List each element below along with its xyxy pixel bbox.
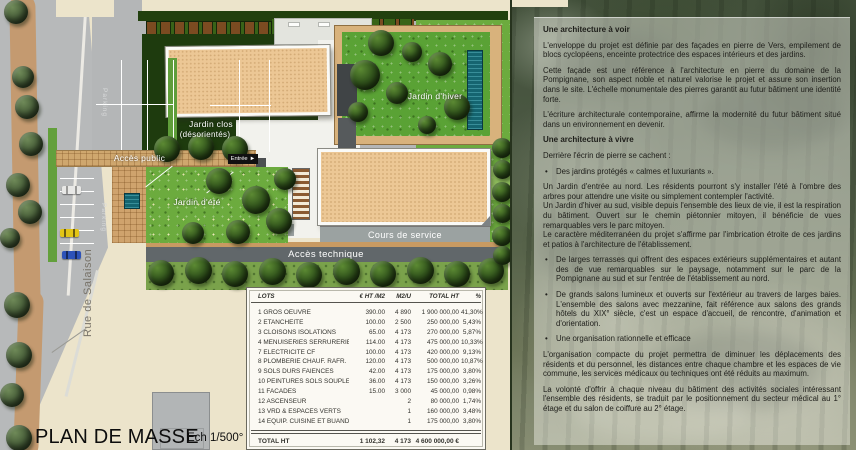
- panel-paragraph: L'enveloppe du projet est définie par de…: [543, 41, 841, 60]
- parking-label: Parking: [101, 88, 108, 117]
- tree-icon: [0, 228, 20, 248]
- table-cell: 9,13%: [461, 348, 483, 358]
- table-row: 13 VRD & ESPACES VERTS1160 000,003,48%: [251, 407, 481, 417]
- table-cell: 4 173: [387, 357, 413, 367]
- tree-icon: [206, 168, 232, 194]
- table-cell: 80 000,00: [413, 397, 461, 407]
- table-cell: 175 000,00: [413, 417, 461, 427]
- table-cell: 7 ELECTRICITE CF: [251, 348, 349, 358]
- table-cell: 4 173: [387, 436, 413, 447]
- public-access-label: Accès public: [92, 153, 187, 163]
- table-cell: TOTAL HT: [251, 436, 349, 447]
- table-cell: 9 SOLS DURS FAIENCES: [251, 367, 349, 377]
- tree-icon: [6, 173, 30, 197]
- tree-icon: [492, 182, 512, 202]
- bullet-icon: •: [543, 255, 556, 284]
- table-cell: 100.00: [349, 348, 387, 358]
- car-icon: [62, 251, 81, 259]
- table-cell: 3,80%: [461, 417, 483, 427]
- page-title: PLAN DE MASSE: [35, 426, 199, 449]
- table-cell: 4 600 000,00 €: [413, 436, 461, 447]
- table-row: 9 SOLS DURS FAIENCES42.004 173175 000,00…: [251, 367, 481, 377]
- table-cell: [349, 397, 387, 407]
- summer-garden-label: Jardin d'été: [152, 197, 242, 207]
- tree-icon: [242, 186, 270, 214]
- table-cell: [349, 407, 387, 417]
- panel-paragraph: L'écriture architecturale contemporaine,…: [543, 110, 841, 129]
- table-cell: 5,87%: [461, 328, 483, 338]
- table-row: 3 CLOISONS ISOLATIONS65.004 173270 000,0…: [251, 328, 481, 338]
- tree-icon: [226, 220, 250, 244]
- lots-table-header: LOTS€ HT /M2M2/UTOTAL HT%: [251, 293, 481, 303]
- table-cell: 120.00: [349, 357, 387, 367]
- tree-icon: [368, 30, 394, 56]
- parking-stripes: [60, 168, 94, 256]
- presentation-page: Cours de service Accès technique Jardin …: [0, 0, 856, 450]
- table-cell: 4 173: [387, 338, 413, 348]
- service-court-label: Cours de service: [368, 230, 442, 240]
- table-row: 10 PEINTURES SOLS SOUPLES36.004 173150 0…: [251, 377, 481, 387]
- tree-icon: [274, 168, 296, 190]
- table-cell: 3 000: [387, 387, 413, 397]
- lots-table-total: TOTAL HT1 102,324 1734 600 000,00 €: [251, 433, 481, 447]
- table-cell: 11 FACADES: [251, 387, 349, 397]
- table-cell: M2/U: [387, 293, 413, 300]
- bullet-icon: •: [543, 334, 556, 344]
- page-margin: [512, 0, 568, 7]
- tree-icon: [4, 292, 30, 318]
- table-cell: 4 173: [387, 328, 413, 338]
- table-cell: 12 ASCENSEUR: [251, 397, 349, 407]
- tree-icon: [407, 257, 434, 284]
- panel-heading: Une architecture à voir: [543, 25, 841, 35]
- panel-paragraph: Derrière l'écrin de pierre se cachent :: [543, 151, 841, 161]
- panel-paragraph: •Une organisation rationnelle et efficac…: [543, 334, 841, 344]
- jardin-clos-label: Jardin clos: [156, 119, 266, 129]
- tree-icon: [348, 102, 368, 122]
- photo-panel: Une architecture à voirL'enveloppe du pr…: [510, 0, 856, 450]
- building-south: [318, 149, 490, 225]
- table-cell: 13 VRD & ESPACES VERTS: [251, 407, 349, 417]
- arrow-right-icon: ►: [250, 156, 256, 162]
- table-cell: 36.00: [349, 377, 387, 387]
- jardin-clos-sublabel: (désorientés): [150, 130, 260, 139]
- tree-icon: [182, 222, 204, 244]
- table-cell: 270 000,00: [413, 328, 461, 338]
- table-cell: 175 000,00: [413, 367, 461, 377]
- table-cell: 4 173: [387, 377, 413, 387]
- tree-icon: [259, 258, 286, 285]
- tree-icon: [19, 132, 43, 156]
- table-cell: 8 PLOMBERIE CHAUF. RAFR.: [251, 357, 349, 367]
- table-cell: 1 900 000,00: [413, 308, 461, 318]
- table-cell: 420 000,00: [413, 348, 461, 358]
- sidewalk-path: [9, 0, 41, 314]
- table-cell: 4 890: [387, 308, 413, 318]
- table-cell: 390.00: [349, 308, 387, 318]
- table-cell: 41,30%: [461, 308, 483, 318]
- table-cell: 0,98%: [461, 387, 483, 397]
- tree-icon: [12, 66, 34, 88]
- lots-table-body: 1 GROS OEUVRE390.004 8901 900 000,0041,3…: [251, 308, 481, 427]
- table-cell: 3,48%: [461, 407, 483, 417]
- table-cell: 2: [387, 397, 413, 407]
- table-cell: 45 000,00: [413, 387, 461, 397]
- tree-icon: [418, 116, 436, 134]
- panel-paragraph: Un Jardin d'entrée au nord. Les résident…: [543, 182, 841, 201]
- table-cell: 1: [387, 407, 413, 417]
- table-row: 14 EQUIP. CUISINE ET BUANDERIE1175 000,0…: [251, 417, 481, 427]
- scale-label: Ech 1/500°: [187, 432, 243, 444]
- bullet-text: Des jardins protégés « calmes et luxuria…: [556, 167, 841, 177]
- panel-text: Une architecture à voirL'enveloppe du pr…: [543, 25, 841, 420]
- table-cell: 15.00: [349, 387, 387, 397]
- table-cell: 150 000,00: [413, 377, 461, 387]
- table-cell: LOTS: [251, 293, 349, 300]
- entrance-text: Entrée: [231, 156, 248, 162]
- tree-icon: [402, 42, 422, 62]
- table-cell: 65.00: [349, 328, 387, 338]
- table-cell: 14 EQUIP. CUISINE ET BUANDERIE: [251, 417, 349, 427]
- tree-icon: [492, 226, 512, 246]
- panel-paragraph: •De grands salons lumineux et ouverts su…: [543, 290, 841, 328]
- table-cell: 500 000,00: [413, 357, 461, 367]
- grass-strip: [48, 128, 57, 262]
- table-cell: [349, 417, 387, 427]
- tree-icon: [492, 138, 512, 158]
- panel-paragraph: •De larges terrasses qui offrent des esp…: [543, 255, 841, 284]
- water-basin: [124, 193, 140, 209]
- table-cell: 10,33%: [461, 338, 483, 348]
- panel-paragraph: •Des jardins protégés « calmes et luxuri…: [543, 167, 841, 177]
- bullet-text: De larges terrasses qui offrent des espa…: [556, 255, 841, 284]
- table-row: 2 ETANCHEITE100.002 500250 000,005,43%: [251, 318, 481, 328]
- table-cell: 475 000,00: [413, 338, 461, 348]
- tree-icon: [222, 261, 248, 287]
- table-cell: 5,43%: [461, 318, 483, 328]
- table-cell: 42.00: [349, 367, 387, 377]
- street-label: Rue de Salaison: [82, 249, 94, 337]
- tree-icon: [370, 261, 396, 287]
- tree-icon: [428, 52, 452, 76]
- tree-icon: [18, 200, 42, 224]
- table-cell: 3,26%: [461, 377, 483, 387]
- panel-paragraph: Cette façade est une référence à l'archi…: [543, 66, 841, 104]
- bullet-icon: •: [543, 167, 556, 177]
- table-cell: € HT /M2: [349, 293, 387, 300]
- car-icon: [60, 229, 79, 237]
- tree-icon: [350, 60, 380, 90]
- table-row: 7 ELECTRICITE CF100.004 173420 000,009,1…: [251, 348, 481, 358]
- bullet-text: Une organisation rationnelle et efficace: [556, 334, 841, 344]
- table-separator: [251, 430, 481, 431]
- plaza-marking: [288, 22, 300, 27]
- table-cell: 160 000,00: [413, 407, 461, 417]
- table-row: 8 PLOMBERIE CHAUF. RAFR.120.004 173500 0…: [251, 357, 481, 367]
- tree-icon: [333, 258, 360, 285]
- table-cell: 1 GROS OEUVRE: [251, 308, 349, 318]
- panel-paragraph: Un Jardin d'hiver au sud, visible depuis…: [543, 201, 841, 230]
- table-cell: 4 173: [387, 367, 413, 377]
- parking-line: [210, 105, 271, 106]
- tree-icon: [6, 342, 32, 368]
- tree-icon: [296, 262, 322, 288]
- table-cell: 10,87%: [461, 357, 483, 367]
- table-cell: 4 173: [387, 348, 413, 358]
- bullet-icon: •: [543, 290, 556, 328]
- tree-icon: [148, 260, 174, 286]
- panel-paragraph: La volonté d'offrir à chaque niveau du b…: [543, 385, 841, 414]
- entrance-label: Entrée ►: [228, 154, 258, 164]
- table-cell: 1,74%: [461, 397, 483, 407]
- bullet-text: De grands salons lumineux et ouverts sur…: [556, 290, 841, 328]
- pool: [467, 50, 483, 130]
- tree-icon: [266, 208, 292, 234]
- table-row: 4 MENUISERIES SERRURERIE114.004 173475 0…: [251, 338, 481, 348]
- page-margin: [56, 0, 114, 17]
- table-cell: 3,80%: [461, 367, 483, 377]
- table-cell: 1: [387, 417, 413, 427]
- panel-heading: Une architecture à vivre: [543, 135, 841, 145]
- table-cell: 10 PEINTURES SOLS SOUPLES: [251, 377, 349, 387]
- winter-garden-label: Jardin d'hiver: [380, 91, 490, 101]
- table-cell: 250 000,00: [413, 318, 461, 328]
- table-row: 1 GROS OEUVRE390.004 8901 900 000,0041,3…: [251, 308, 481, 318]
- table-cell: 1 102,32: [349, 436, 387, 447]
- table-cell: [461, 436, 483, 447]
- table-row: 11 FACADES15.003 00045 000,000,98%: [251, 387, 481, 397]
- table-cell: 2 500: [387, 318, 413, 328]
- panel-paragraph: L'organisation compacte du projet permet…: [543, 350, 841, 379]
- table-row: 12 ASCENSEUR280 000,001,74%: [251, 397, 481, 407]
- table-cell: TOTAL HT: [413, 293, 461, 300]
- parking-label: Parking: [100, 203, 107, 232]
- table-cell: 3 CLOISONS ISOLATIONS: [251, 328, 349, 338]
- tree-icon: [6, 425, 32, 450]
- table-cell: 114.00: [349, 338, 387, 348]
- lots-table: LOTS€ HT /M2M2/UTOTAL HT% 1 GROS OEUVRE3…: [246, 287, 486, 450]
- table-cell: %: [461, 293, 483, 300]
- service-court-strip: Cours de service: [320, 226, 490, 243]
- table-cell: 4 MENUISERIES SERRURERIE: [251, 338, 349, 348]
- tree-icon: [15, 95, 39, 119]
- technical-access-label: Accès technique: [288, 249, 364, 260]
- tree-icon: [4, 0, 28, 24]
- plaza-marking: [318, 22, 330, 27]
- table-cell: 2 ETANCHEITE: [251, 318, 349, 328]
- tree-icon: [444, 261, 470, 287]
- text-overlay: Une architecture à voirL'enveloppe du pr…: [534, 17, 850, 445]
- table-cell: 100.00: [349, 318, 387, 328]
- panel-paragraph: Le caractère méditerranéen du projet s'a…: [543, 230, 841, 249]
- car-icon: [62, 186, 81, 194]
- tree-icon: [185, 257, 212, 284]
- tree-icon: [0, 383, 24, 407]
